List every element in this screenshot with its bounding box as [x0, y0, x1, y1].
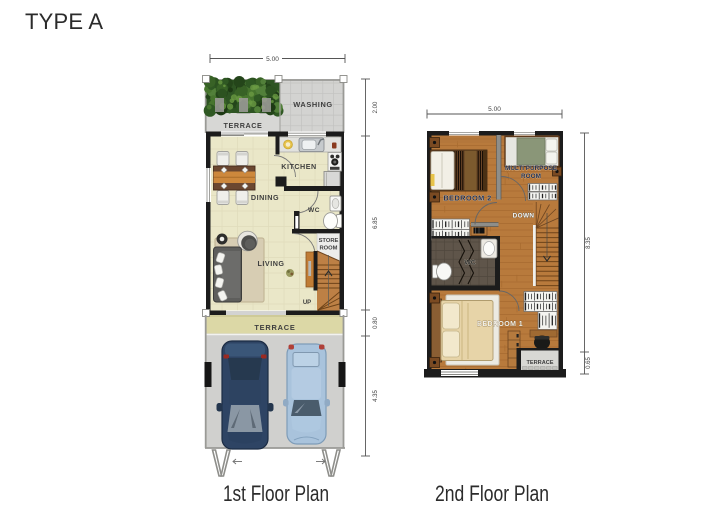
svg-text:1st Floor Plan: 1st Floor Plan [223, 481, 329, 506]
svg-text:WC: WC [465, 260, 476, 267]
svg-text:TERRACE: TERRACE [224, 121, 263, 130]
svg-text:KITCHEN: KITCHEN [281, 162, 316, 171]
svg-text:6.85: 6.85 [373, 217, 379, 229]
svg-text:2.00: 2.00 [373, 101, 379, 113]
svg-text:DINING: DINING [251, 193, 279, 202]
svg-text:STORE: STORE [319, 238, 339, 244]
svg-text:0.65: 0.65 [586, 357, 592, 369]
svg-text:ROOM: ROOM [521, 173, 541, 180]
svg-text:5.00: 5.00 [266, 56, 279, 63]
svg-text:4.35: 4.35 [373, 390, 379, 402]
svg-text:LIVING: LIVING [258, 259, 285, 268]
svg-text:TERRACE: TERRACE [526, 360, 553, 366]
svg-text:2nd Floor Plan: 2nd Floor Plan [435, 481, 549, 506]
svg-text:DOWN: DOWN [513, 213, 535, 220]
svg-text:WC: WC [308, 207, 320, 214]
svg-text:WASHING: WASHING [293, 100, 333, 109]
svg-text:TERRACE: TERRACE [254, 323, 295, 332]
svg-text:BEDROOM 2: BEDROOM 2 [443, 194, 491, 203]
svg-text:5.00: 5.00 [488, 106, 501, 113]
svg-text:MULTI PURPOSE: MULTI PURPOSE [505, 165, 558, 172]
svg-text:ROOM: ROOM [319, 246, 337, 252]
svg-text:0.80: 0.80 [373, 317, 379, 329]
svg-text:TYPE A: TYPE A [25, 9, 103, 34]
svg-text:UP: UP [303, 300, 311, 306]
svg-text:BEDROOM 1: BEDROOM 1 [477, 321, 523, 328]
svg-text:8.35: 8.35 [586, 237, 592, 249]
